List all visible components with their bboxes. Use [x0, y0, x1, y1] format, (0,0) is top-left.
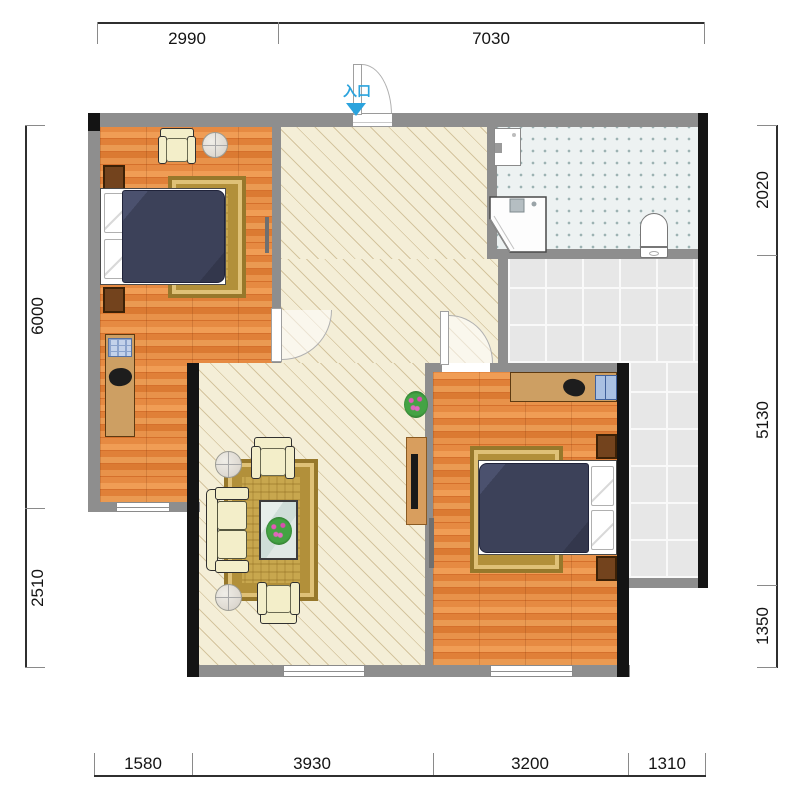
- bedroom-left-door-leaf: [271, 308, 282, 362]
- wall-balcony-bottom: [629, 578, 708, 588]
- dim-tick: [757, 255, 777, 256]
- dim-label-right-2: 1350: [753, 607, 773, 645]
- bedroom-left-wall-handle: [265, 217, 269, 253]
- shower-shape: [489, 196, 547, 253]
- balcony-floor-upper: [508, 259, 698, 363]
- dim-tick: [757, 667, 777, 668]
- dim-tick: [278, 22, 279, 44]
- window-bedroom-left: [116, 502, 170, 512]
- armchair-seat: [266, 585, 291, 613]
- computer-monitor: [108, 338, 132, 357]
- bedroom-left-armchair: [158, 128, 196, 164]
- bedroom-right-wall-handle: [429, 518, 434, 568]
- sofa-cushion: [217, 530, 247, 559]
- dim-tick: [433, 753, 434, 775]
- sofa-armrest-bottom: [215, 560, 249, 573]
- bedroom-right-door-leaf: [440, 311, 449, 365]
- dim-line-top: [97, 22, 705, 24]
- bed-blanket: [122, 190, 225, 283]
- dim-tick: [704, 22, 705, 44]
- toilet: [640, 213, 668, 258]
- wall-bearing-living-left: [187, 363, 199, 677]
- sofa-back: [206, 489, 218, 571]
- bedroom-left-round-table: [202, 132, 228, 158]
- coffee-table: [259, 500, 298, 560]
- side-table-top: [215, 451, 242, 478]
- armchair-arm-right: [187, 136, 196, 164]
- dim-label-left-0: 6000: [28, 297, 48, 335]
- dim-tick: [25, 508, 45, 509]
- bedroom-right-nightstand-top: [596, 434, 617, 459]
- sink-faucet: [495, 143, 502, 153]
- bed-pillow: [591, 466, 614, 506]
- shoe-item: [561, 376, 587, 399]
- armchair-seat: [260, 448, 286, 476]
- bedroom-left-nightstand-bottom: [103, 287, 125, 313]
- coffee-table-plant: [266, 517, 292, 545]
- dim-line-left: [25, 125, 27, 668]
- desk-chair: [108, 366, 134, 388]
- dim-label-right-1: 5130: [753, 401, 773, 439]
- wall-bearing-right-outer: [698, 113, 708, 588]
- sink-drain: [512, 133, 516, 137]
- entry-direction-icon: [346, 103, 366, 116]
- bedroom-right-desk: [510, 372, 617, 402]
- armchair-seat: [166, 138, 188, 162]
- dim-label-bottom-3: 1310: [648, 754, 686, 774]
- dim-tick: [628, 753, 629, 775]
- armchair-arm-right: [285, 446, 295, 479]
- dim-tick: [192, 753, 193, 775]
- dim-label-right-0: 2020: [753, 171, 773, 209]
- bedroom-left-bed: [100, 188, 226, 285]
- dim-label-bottom-1: 3930: [293, 754, 331, 774]
- dim-label-bottom-0: 1580: [124, 754, 162, 774]
- bedroom-left-desk: [105, 334, 135, 437]
- sofa-cushion: [217, 501, 247, 530]
- sofa-armrest-top: [215, 487, 249, 500]
- shirt-item: [595, 375, 617, 400]
- dim-tick: [757, 585, 777, 586]
- window-living-room: [283, 665, 365, 677]
- sofa: [206, 487, 249, 573]
- dim-label-top-1: 7030: [472, 29, 510, 49]
- wall-bearing-bedroom-right: [617, 363, 629, 677]
- living-room-plant: [404, 391, 428, 418]
- dim-tick: [25, 667, 45, 668]
- bedroom-right-nightstand-bottom: [596, 556, 617, 581]
- dim-label-bottom-2: 3200: [511, 754, 549, 774]
- toilet-flush: [649, 251, 659, 256]
- wall-top: [88, 113, 708, 127]
- armchair-bottom: [257, 581, 300, 624]
- armchair-arm-right: [290, 582, 300, 615]
- dim-label-top-0: 2990: [168, 29, 206, 49]
- wall-left-outer: [88, 113, 100, 512]
- tv-screen: [411, 454, 418, 509]
- bedroom-right-bed: [478, 460, 617, 555]
- dim-tick: [757, 125, 777, 126]
- side-table-bottom: [215, 584, 242, 611]
- window-bedroom-right: [490, 665, 573, 677]
- toilet-tank-line: [641, 246, 667, 248]
- shower-enclosure: [489, 196, 547, 253]
- bed-pillow: [591, 510, 614, 550]
- hallway-floor-upper: [281, 127, 487, 259]
- dim-tick: [25, 125, 45, 126]
- dim-label-left-1: 2510: [28, 569, 48, 607]
- dim-tick: [705, 753, 706, 775]
- tv-cabinet: [406, 437, 427, 525]
- wall-corner-top-left: [88, 113, 100, 131]
- balcony-floor-right: [629, 363, 698, 578]
- bed-blanket: [479, 463, 589, 553]
- bedroom-right-door-gap: [442, 363, 490, 372]
- wall-balcony-left: [498, 259, 508, 363]
- dim-tick: [94, 753, 95, 775]
- bathroom-sink: [494, 128, 521, 166]
- armchair-top: [251, 437, 295, 479]
- dim-line-right: [776, 125, 778, 668]
- floor-plan: 入口: [0, 0, 800, 800]
- entry-label: 入口: [343, 81, 371, 101]
- dim-line-bottom: [94, 775, 706, 777]
- dim-tick: [97, 22, 98, 44]
